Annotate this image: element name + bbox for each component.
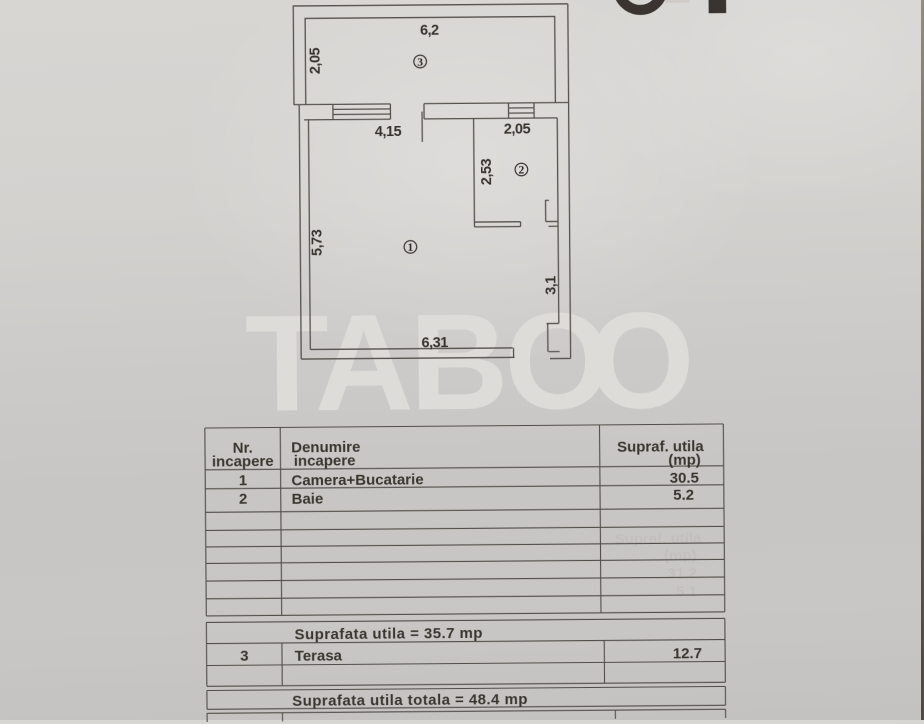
- svg-text:incapere: incapere: [294, 452, 356, 469]
- svg-text:2: 2: [518, 165, 524, 177]
- svg-text:12.7: 12.7: [673, 645, 702, 662]
- svg-text:6,31: 6,31: [421, 335, 448, 351]
- svg-text:3,1: 3,1: [543, 276, 559, 295]
- svg-text:Baie: Baie: [292, 491, 324, 508]
- svg-text:1: 1: [239, 472, 247, 489]
- svg-text:Camera+Bucatarie: Camera+Bucatarie: [291, 471, 423, 489]
- svg-text:2,05: 2,05: [504, 121, 531, 137]
- svg-text:2,53: 2,53: [479, 158, 495, 185]
- svg-text:2: 2: [239, 491, 247, 508]
- svg-text:Suprafata utila = 35.7 mp: Suprafata utila = 35.7 mp: [294, 625, 483, 643]
- svg-text:incapere: incapere: [212, 453, 274, 470]
- svg-text:(mp): (mp): [664, 547, 697, 564]
- svg-text:3: 3: [240, 648, 248, 665]
- svg-text:1: 1: [407, 242, 413, 254]
- svg-text:(mp): (mp): [668, 452, 701, 469]
- svg-text:Suprafata utila totala = 48.4: Suprafata utila totala = 48.4 mp: [292, 691, 528, 710]
- svg-text:6,2: 6,2: [420, 22, 439, 38]
- svg-text:3: 3: [417, 57, 423, 69]
- svg-text:5,73: 5,73: [309, 229, 325, 256]
- svg-text:4,15: 4,15: [375, 124, 402, 140]
- svg-text:30.5: 30.5: [670, 470, 699, 487]
- svg-text:2,05: 2,05: [308, 47, 324, 74]
- svg-text:5.1: 5.1: [676, 583, 697, 600]
- svg-text:31.2: 31.2: [667, 565, 696, 582]
- svg-text:Terasa: Terasa: [295, 647, 343, 664]
- svg-text:5.2: 5.2: [673, 487, 694, 504]
- svg-text:Supraf. utila: Supraf. utila: [615, 530, 702, 548]
